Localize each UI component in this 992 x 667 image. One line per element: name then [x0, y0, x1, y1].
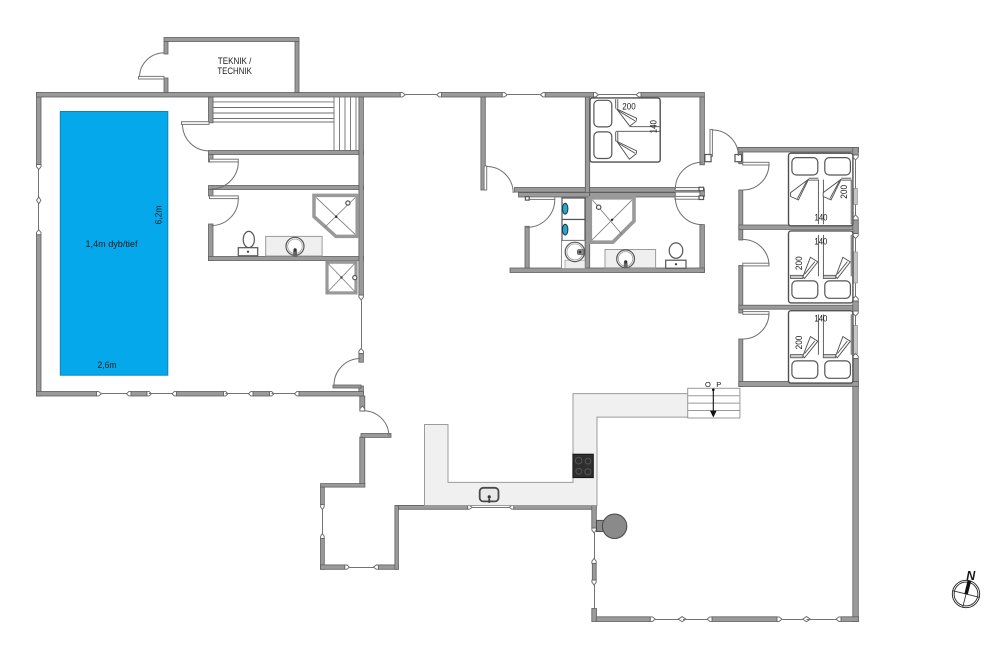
svg-text:P: P: [716, 380, 721, 389]
svg-text:140: 140: [648, 120, 659, 133]
svg-text:140: 140: [814, 313, 827, 324]
svg-text:1,4m dyb/tief: 1,4m dyb/tief: [86, 239, 138, 249]
svg-text:140: 140: [814, 237, 827, 248]
svg-text:200: 200: [839, 185, 850, 199]
svg-text:200: 200: [794, 336, 805, 350]
svg-text:TECHNIK: TECHNIK: [217, 65, 252, 76]
svg-text:200: 200: [622, 102, 635, 113]
svg-text:6,2m: 6,2m: [153, 205, 163, 224]
svg-text:O: O: [705, 380, 711, 389]
svg-text:2,6m: 2,6m: [98, 360, 117, 370]
svg-text:N: N: [966, 569, 976, 583]
svg-text:140: 140: [815, 212, 828, 223]
svg-text:200: 200: [794, 256, 805, 270]
